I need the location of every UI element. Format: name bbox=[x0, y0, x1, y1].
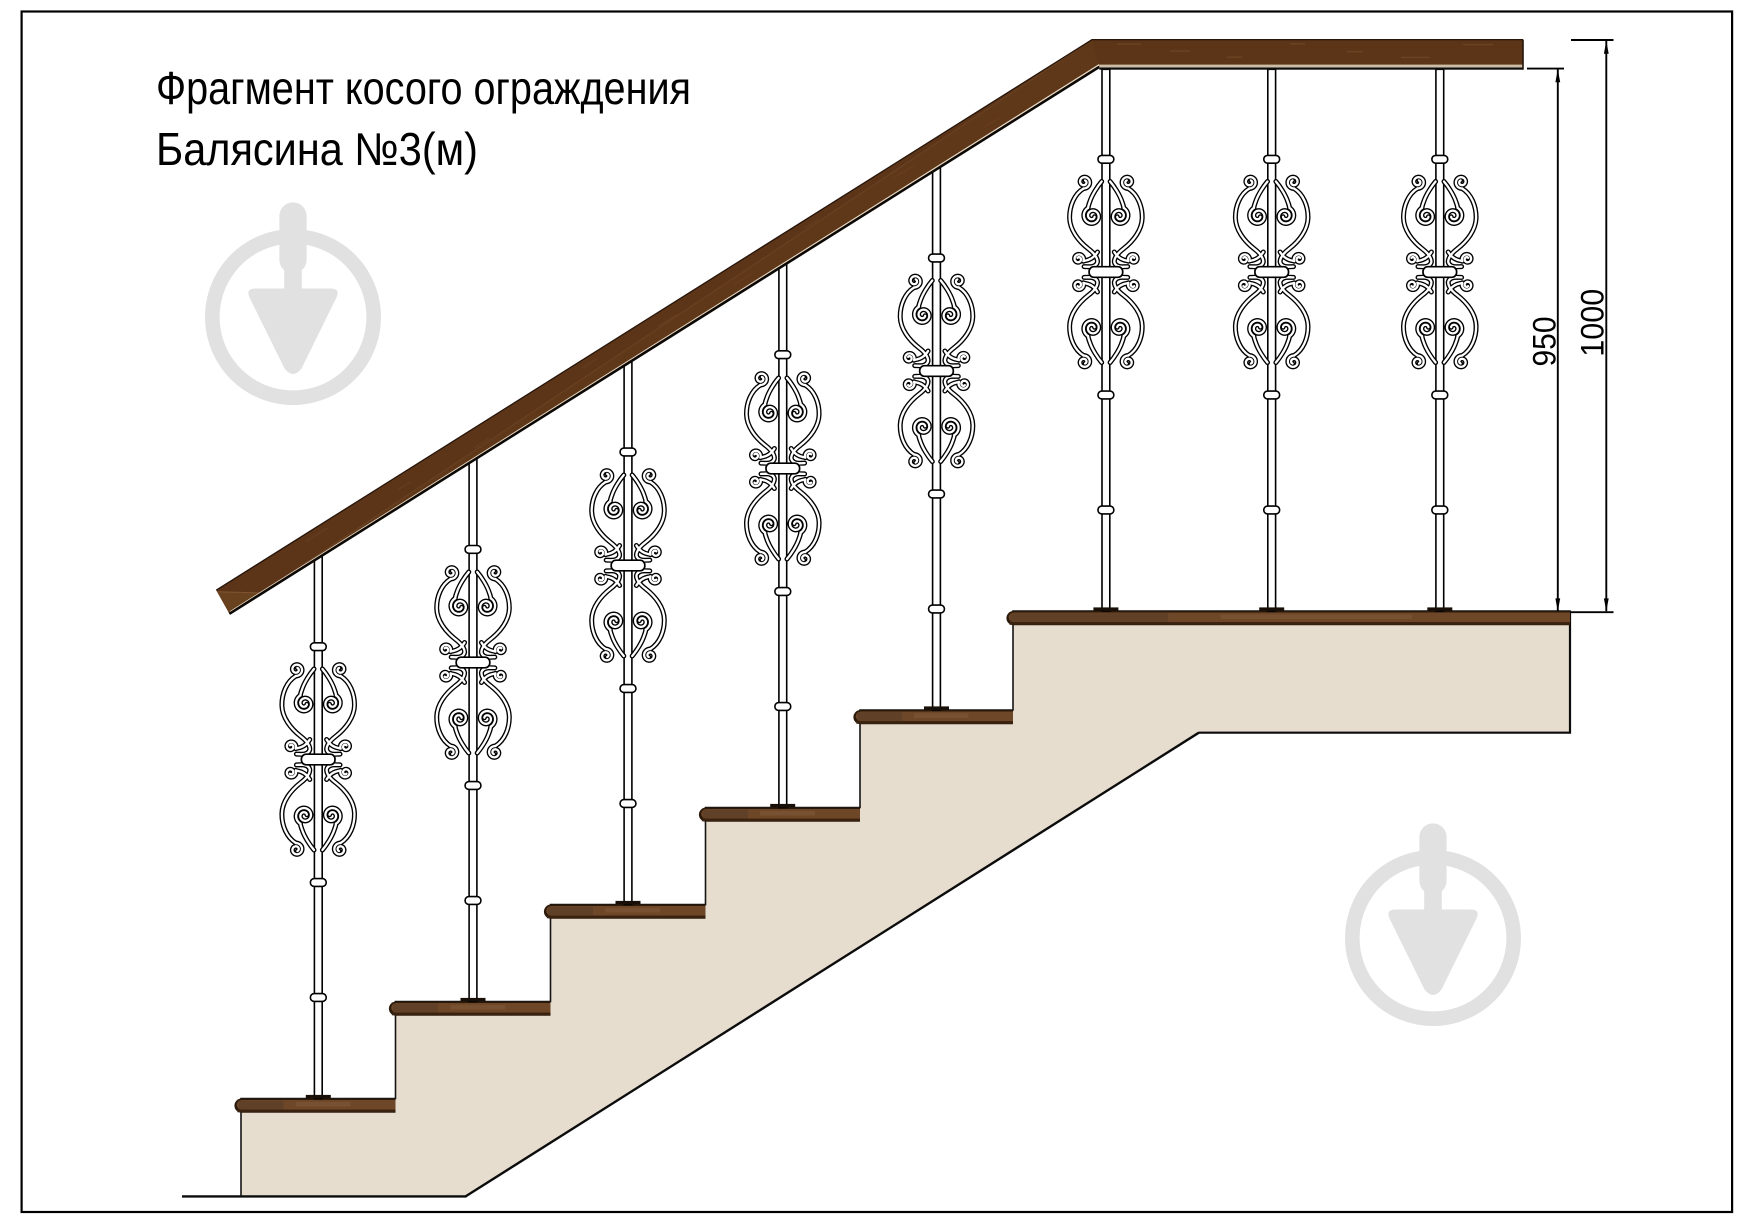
svg-text:950: 950 bbox=[1527, 317, 1563, 367]
svg-text:Балясина №3(м): Балясина №3(м) bbox=[156, 123, 478, 175]
svg-text:1000: 1000 bbox=[1574, 289, 1610, 357]
svg-text:Фрагмент косого ограждения: Фрагмент косого ограждения bbox=[156, 62, 691, 114]
